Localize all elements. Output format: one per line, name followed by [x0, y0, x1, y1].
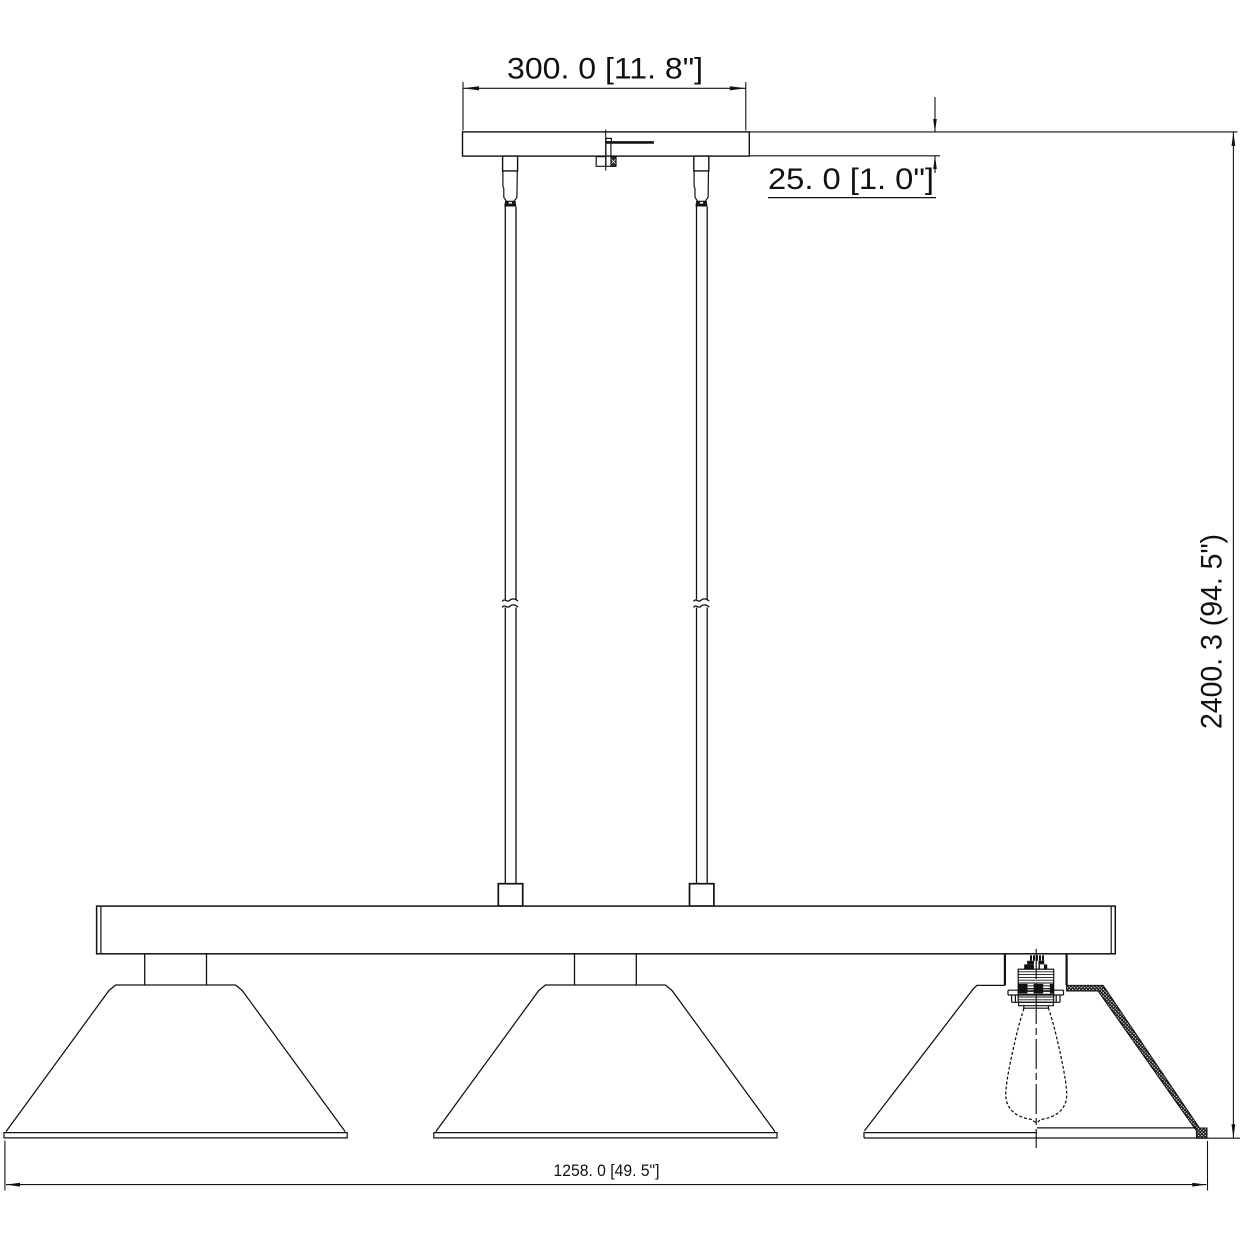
svg-text:300. 0 [11. 8"]: 300. 0 [11. 8"]: [507, 53, 703, 86]
svg-text:2400. 3 (94. 5"): 2400. 3 (94. 5"): [1196, 534, 1229, 729]
svg-text:25. 0 [1. 0"]: 25. 0 [1. 0"]: [768, 163, 934, 196]
svg-text:1258. 0 [49. 5"]: 1258. 0 [49. 5"]: [554, 1162, 660, 1180]
